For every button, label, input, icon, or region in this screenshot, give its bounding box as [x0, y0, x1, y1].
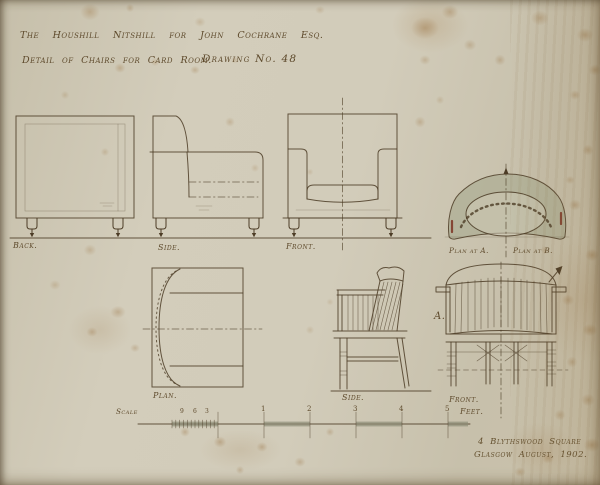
label-plan-view: Plan. [153, 391, 177, 400]
label-front-view-bottom: Front. [449, 395, 479, 404]
title-project-line: The Houshill Nitshill for John Cochrane … [20, 30, 323, 41]
scale-inch-9: 9 [180, 408, 184, 415]
label-feet-unit: Feet. [460, 407, 483, 416]
label-side-view-bottom: Side. [342, 393, 364, 402]
easy-chair-plan-section [445, 164, 569, 257]
drawing-number: Drawing No. 48 [202, 53, 297, 65]
pointer-arrow-icon [549, 266, 563, 282]
title-subject-line: Detail of Chairs for Card Room. [22, 55, 212, 66]
section-marker-a: A. [434, 311, 445, 322]
spindle-chair-side-view [331, 267, 431, 391]
scale-bar [138, 412, 470, 438]
label-plan-at-b: Plan at B. [513, 246, 553, 255]
easy-chair-front-view [283, 98, 402, 250]
label-plan-at-a: Plan at A. [449, 246, 489, 255]
easy-chair-back-view [16, 116, 134, 237]
easy-chair-plan-view [143, 268, 262, 387]
scale-foot-1: 1 [261, 405, 266, 413]
signature-place-date: Glasgow August, 1902. [474, 450, 587, 460]
scale-inch-6: 6 [193, 408, 197, 415]
label-back-view: Back. [13, 241, 37, 250]
drawing-sheet: The Houshill Nitshill for John Cochrane … [0, 0, 600, 485]
signature-address: 4 Blythswood Square [478, 437, 581, 447]
label-front-view-top: Front. [286, 242, 316, 251]
scale-foot-2: 2 [307, 405, 312, 413]
scale-foot-3: 3 [353, 405, 358, 413]
label-side-view-top: Side. [158, 243, 180, 252]
scale-inch-3: 3 [205, 408, 209, 415]
scale-foot-5: 5 [445, 405, 450, 413]
scale-foot-4: 4 [399, 405, 404, 413]
label-scale: Scale [116, 407, 138, 416]
easy-chair-side-view [150, 116, 263, 237]
